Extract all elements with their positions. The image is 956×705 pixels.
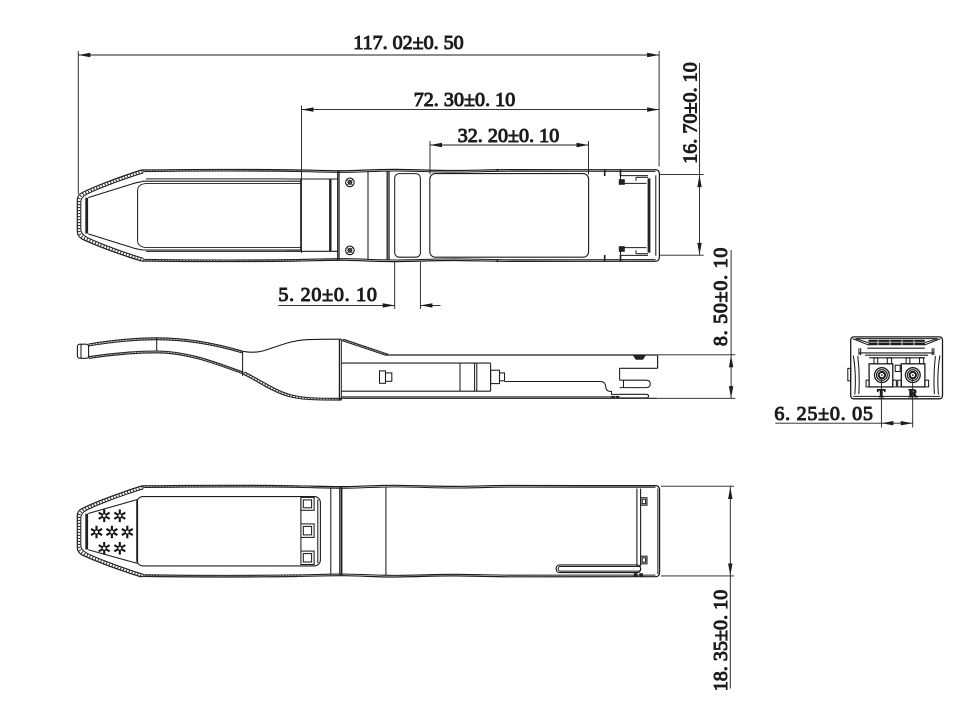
svg-text:18. 35±0. 10: 18. 35±0. 10 bbox=[710, 590, 732, 692]
svg-text:32. 20±0. 10: 32. 20±0. 10 bbox=[458, 125, 560, 147]
svg-text:117. 02±0. 50: 117. 02±0. 50 bbox=[353, 32, 463, 54]
svg-text:R: R bbox=[909, 386, 918, 400]
svg-text:8. 50±0. 10: 8. 50±0. 10 bbox=[710, 247, 732, 346]
svg-text:6. 25±0. 05: 6. 25±0. 05 bbox=[774, 403, 873, 425]
svg-text:5. 20±0. 10: 5. 20±0. 10 bbox=[278, 284, 377, 306]
svg-text:16. 70±0. 10: 16. 70±0. 10 bbox=[680, 62, 702, 164]
svg-text:T: T bbox=[877, 386, 885, 400]
svg-text:72. 30±0. 10: 72. 30±0. 10 bbox=[414, 89, 516, 111]
